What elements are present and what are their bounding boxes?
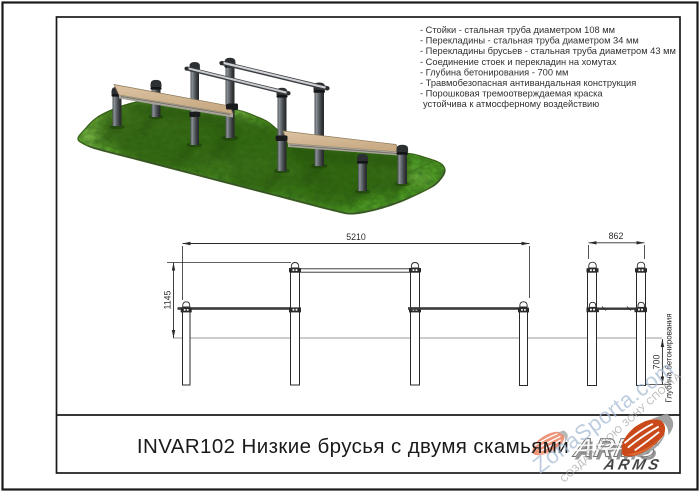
svg-text:- Порошковая тремоотверждаемая: - Порошковая тремоотверждаемая краска [420, 89, 603, 99]
svg-text:862: 862 [609, 231, 624, 241]
svg-text:- Стойки - стальная труба диам: - Стойки - стальная труба диаметром 108 … [420, 25, 615, 35]
svg-text:- Травмобезопасная антивандаль: - Травмобезопасная антивандальная констр… [420, 78, 636, 88]
svg-text:INVAR102 Низкие брусья с двумя: INVAR102 Низкие брусья с двумя скамьями [137, 435, 569, 458]
svg-text:- Глубина бетонирования - 700: - Глубина бетонирования - 700 мм [420, 67, 568, 77]
svg-text:- Соединение стоек и переклади: - Соединение стоек и перекладин на хомут… [420, 57, 617, 67]
svg-text:ARMS: ARMS [601, 457, 664, 474]
svg-text:5210: 5210 [346, 232, 366, 242]
svg-text:устойчива к атмосферному возде: устойчива к атмосферному воздействию [423, 99, 599, 109]
svg-text:- Перекладины брусьев - стальн: - Перекладины брусьев - стальная труба д… [420, 46, 676, 56]
svg-text:1145: 1145 [163, 290, 173, 309]
svg-text:- Перекладины - стальная труба: - Перекладины - стальная труба диаметром… [420, 36, 639, 46]
